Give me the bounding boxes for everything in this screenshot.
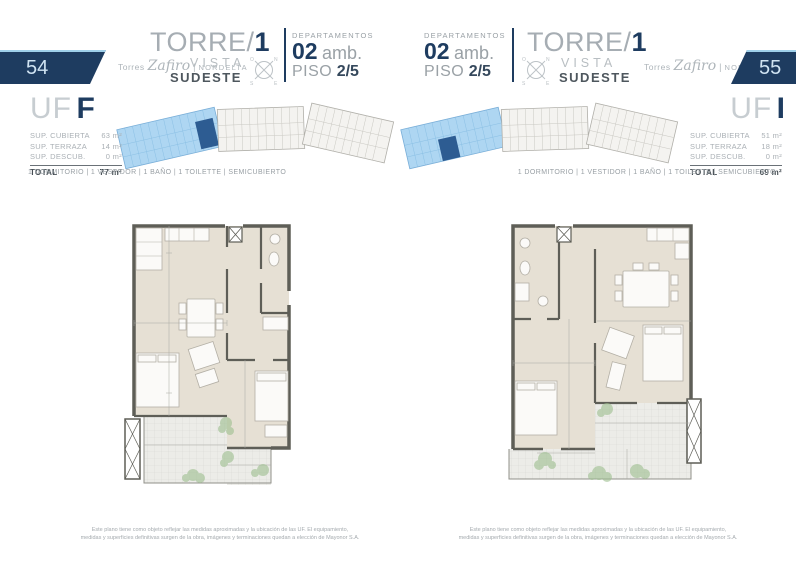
surface-row: SUP. TERRAZA 18 m²	[690, 142, 782, 153]
keyplan-map-right	[396, 84, 684, 174]
page-number: 54	[26, 57, 48, 80]
tower-highlight	[401, 107, 507, 168]
floor-plan-uf-f	[105, 213, 305, 505]
disclaimer-left: Este plano tiene como objeto reflejar la…	[52, 527, 388, 542]
surface-row: SUP. CUBIERTA 63 m²	[30, 131, 122, 142]
uf-title-left: UF F	[30, 92, 95, 126]
floor-label-right: PISO 2/5	[424, 63, 491, 81]
surface-row: SUP. CUBIERTA 51 m²	[690, 131, 782, 142]
surface-row: SUP. TERRAZA 14 m²	[30, 142, 122, 153]
surface-row: SUP. DESCUB. 0 m²	[30, 152, 122, 163]
compass-icon-left: O N S E	[247, 52, 281, 86]
features-list-left: 1 DORMITORIO | 1 VESTIDOR | 1 BAÑO | 1 T…	[28, 169, 286, 176]
direction-label-left: SUDESTE	[170, 70, 242, 85]
floor-label-left: PISO 2/5	[292, 63, 359, 81]
brand-prefix: Torres	[118, 62, 145, 72]
compass-north: N	[274, 57, 278, 63]
surface-row: SUP. DESCUB. 0 m²	[690, 152, 782, 163]
rooms-count-right: 02 amb.	[424, 38, 494, 65]
floor-plan-uf-i	[497, 213, 705, 505]
vista-label-right: VISTA	[561, 56, 616, 70]
features-list-right: 1 DORMITORIO | 1 VESTIDOR | 1 BAÑO | 1 T…	[470, 169, 776, 176]
header-divider-right	[512, 28, 514, 82]
page-number-banner-left: 54	[0, 50, 106, 84]
compass-north: N	[546, 57, 550, 63]
page-number: 55	[759, 57, 781, 80]
tower-highlight	[117, 107, 223, 168]
vista-label-left: VISTA	[190, 56, 245, 70]
disclaimer-right: Este plano tiene como objeto reflejar la…	[424, 527, 772, 542]
page-number-banner-right: 55	[731, 50, 796, 84]
header-divider-left	[284, 28, 286, 82]
compass-west: O	[250, 57, 254, 63]
compass-west: O	[522, 57, 526, 63]
direction-label-right: SUDESTE	[559, 70, 631, 85]
rooms-count-left: 02 amb.	[292, 38, 362, 65]
keyplan-map-left	[112, 84, 400, 174]
compass-icon-right: O N S E	[519, 52, 553, 86]
uf-title-right: UF I	[688, 92, 785, 126]
